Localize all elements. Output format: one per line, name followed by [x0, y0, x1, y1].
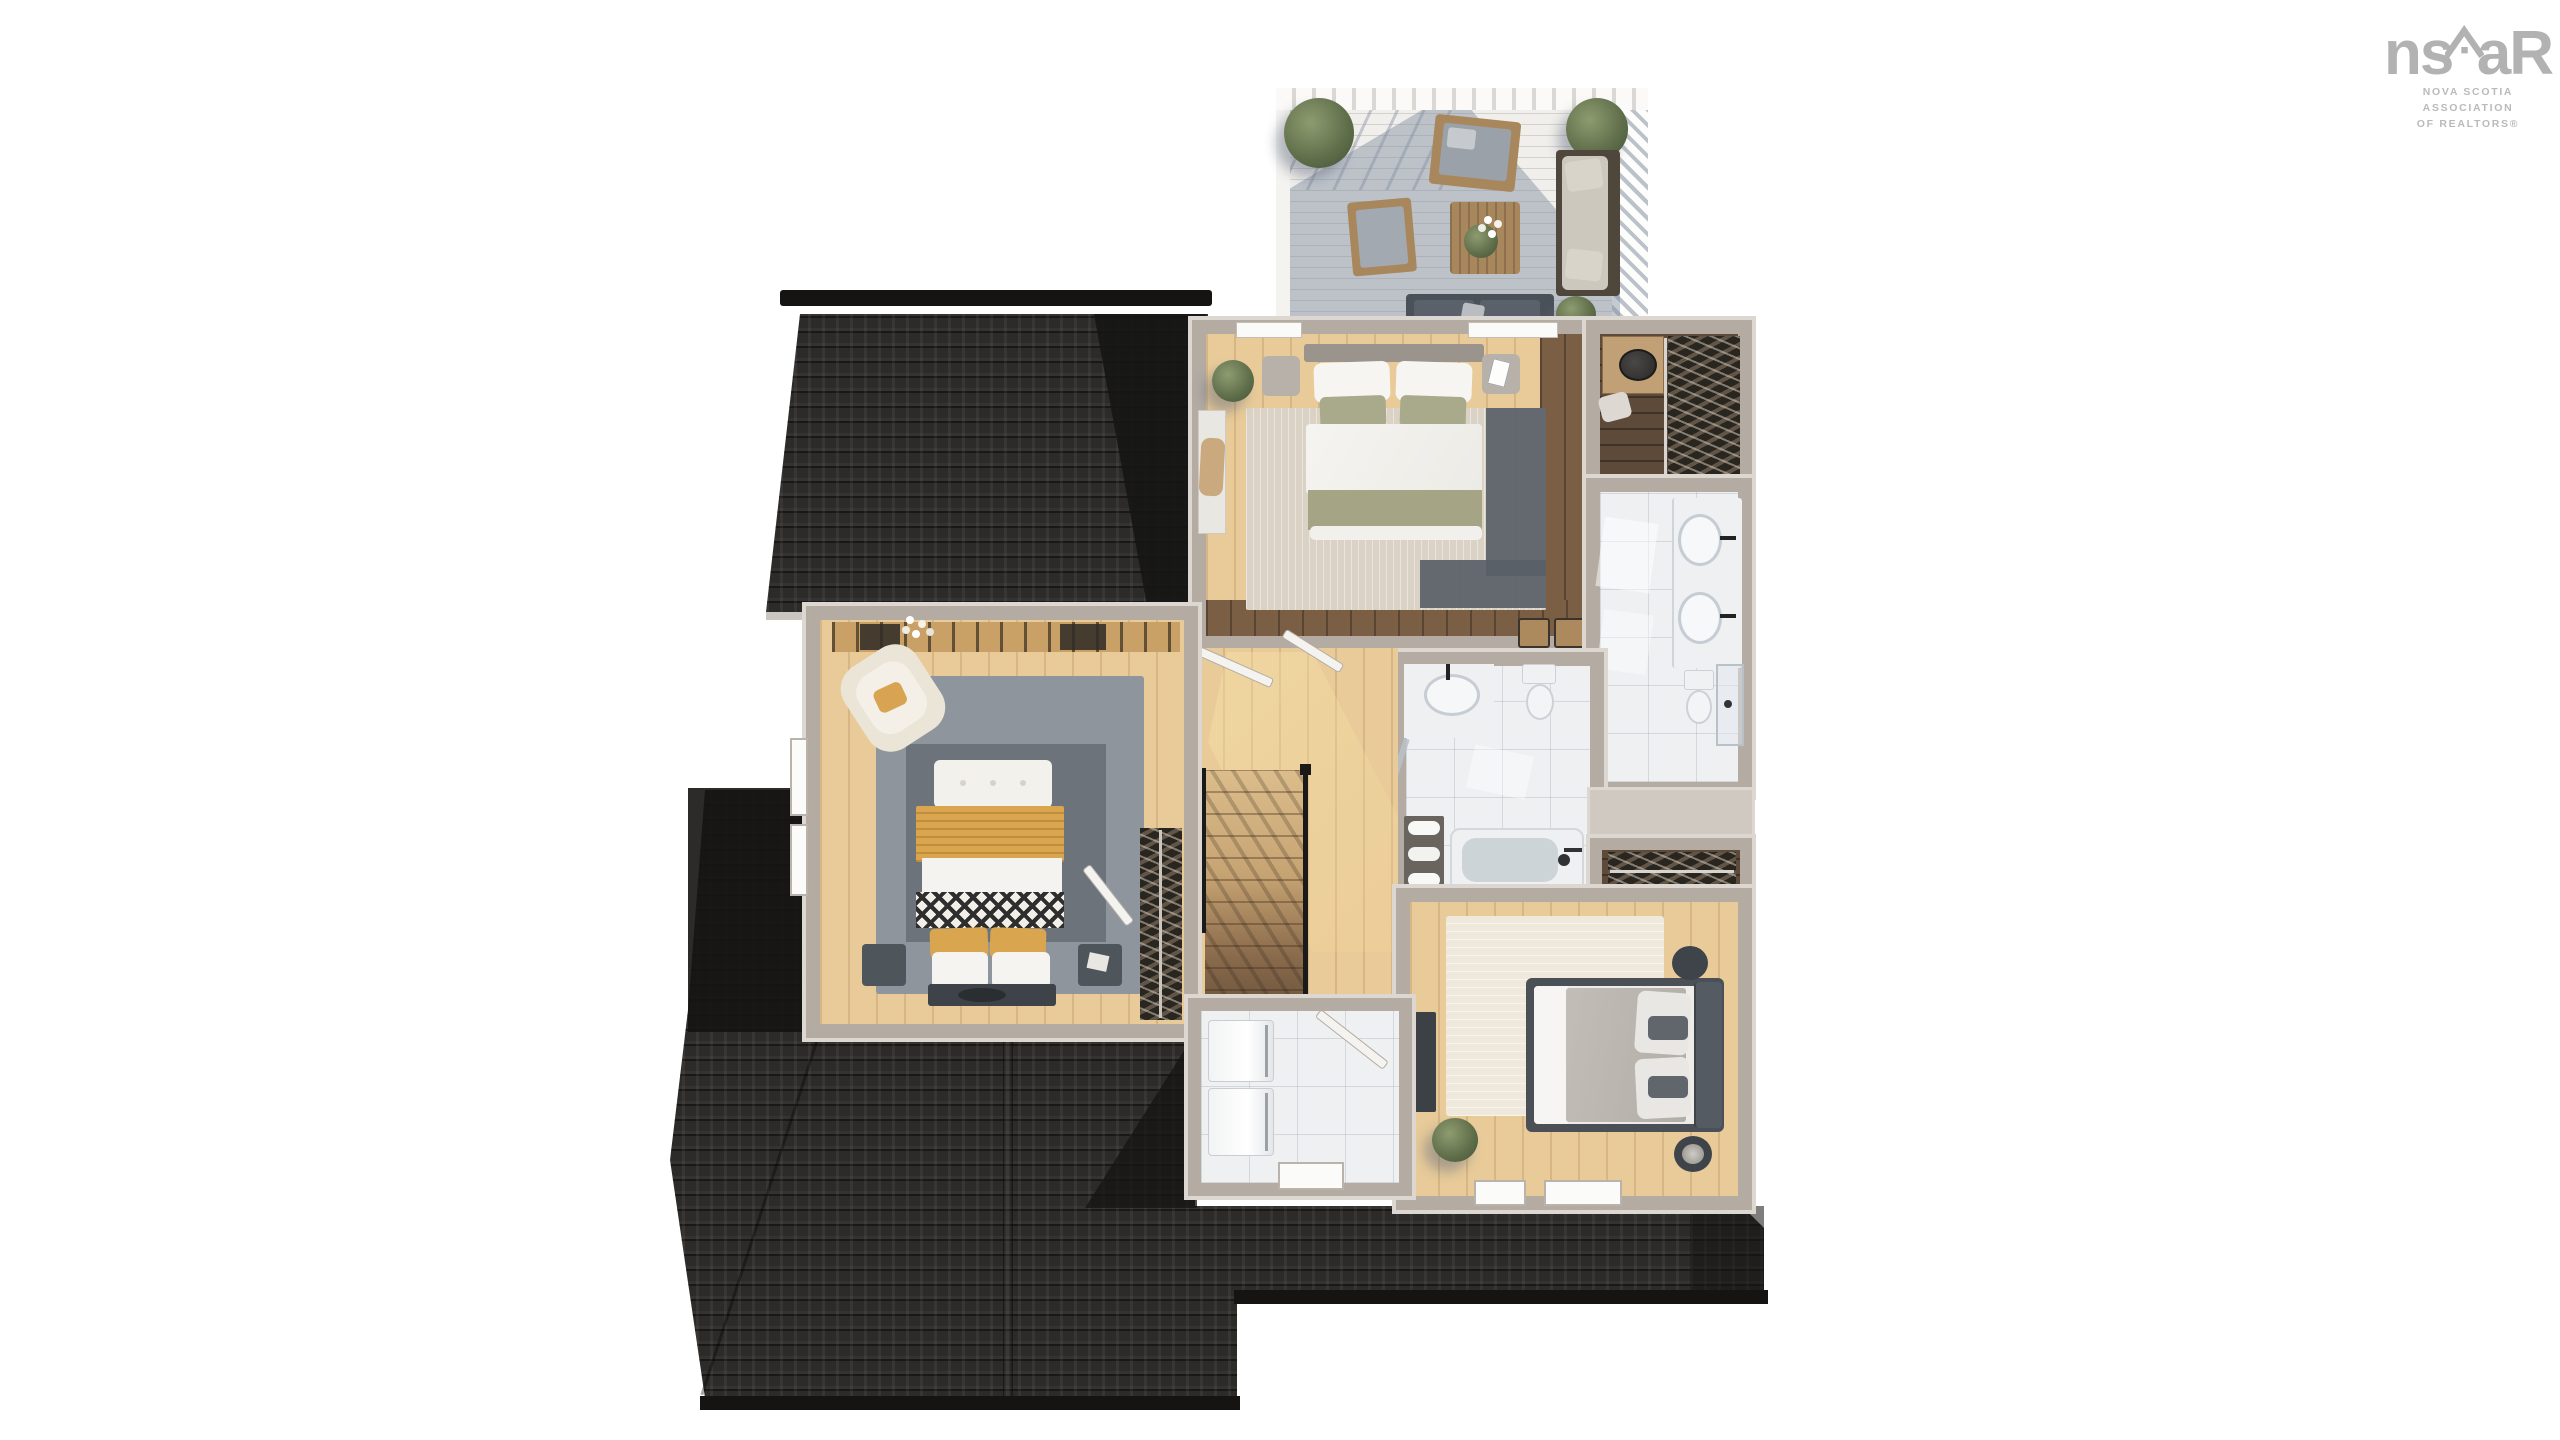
bed-throw-chevron [916, 892, 1064, 928]
faucet [1720, 536, 1736, 540]
towel-shelf [1404, 816, 1444, 894]
primary-floor-walnut [1540, 334, 1592, 636]
floor-tray [958, 988, 1006, 1002]
round-pouf [1674, 1136, 1712, 1172]
hanging-clothes [1668, 336, 1740, 482]
bed-headboard [1304, 344, 1484, 362]
railing-post [1300, 764, 1311, 775]
logo-tagline: NOVA SCOTIA ASSOCIATION OF REALTORS® [2384, 85, 2552, 132]
houseplant [1432, 1118, 1478, 1162]
outdoor-sectional-sofa [1556, 150, 1620, 296]
window [1544, 1180, 1622, 1206]
wood-stool [1554, 618, 1586, 648]
logo-tagline-line1: NOVA SCOTIA ASSOCIATION [2384, 85, 2552, 117]
faucet [1446, 664, 1450, 680]
window [1278, 1162, 1344, 1190]
vessel-sink [1678, 592, 1722, 644]
wood-stool [1518, 618, 1550, 648]
dryer [1208, 1088, 1274, 1156]
bed-pillow-accent [1648, 1076, 1688, 1098]
roof-gutter-bottom [700, 1396, 1240, 1410]
bathtub [1450, 828, 1584, 892]
lounge-chair [1429, 114, 1522, 193]
window [1474, 1180, 1526, 1206]
vessel-sink [1678, 514, 1722, 566]
bed-throw-sage [1308, 490, 1482, 530]
closet-dresser [1602, 336, 1664, 394]
window [790, 824, 808, 896]
houseplant [1212, 360, 1254, 402]
roof-ridge-cap [780, 290, 1212, 306]
bed-pillow [992, 952, 1050, 988]
roof-gutter-right [1234, 1290, 1768, 1304]
staircase [1205, 770, 1305, 1035]
shower-glass [1716, 664, 1744, 746]
roof-ridge-seam [1003, 1030, 1013, 1398]
outdoor-table [1450, 202, 1520, 274]
tub-faucet [1558, 854, 1570, 866]
stair-railing [1201, 768, 1206, 933]
logo-text-right: aR [2477, 30, 2552, 78]
bed-duvet [1306, 424, 1482, 494]
closet-rod [1159, 830, 1162, 1018]
round-pouf [1672, 946, 1708, 980]
toilet-bowl [1686, 690, 1712, 724]
nightstand [1262, 356, 1300, 396]
washer [1208, 1020, 1274, 1082]
window-sill [1236, 322, 1302, 338]
bed-foot [1310, 526, 1482, 540]
window [790, 738, 808, 816]
desk [1412, 1012, 1436, 1112]
faucet [1720, 614, 1736, 618]
closet-rod [1664, 338, 1667, 482]
nsar-logo: ns aR NOVA SCOTIA ASSOCIATION OF REALTOR… [2384, 20, 2552, 132]
roof-lower-shadow-right [1690, 1206, 1764, 1292]
window-sill [1468, 322, 1558, 338]
floor-plan: ns aR NOVA SCOTIA ASSOCIATION OF REALTOR… [0, 0, 2560, 1440]
desk-chair [1198, 437, 1225, 496]
bed-duvet [922, 858, 1062, 896]
dark-rug [1420, 560, 1546, 608]
hanging-garment [1060, 624, 1106, 650]
bed-bench [934, 760, 1052, 808]
toilet [1522, 664, 1556, 684]
bed-pillow-accent [1648, 1016, 1688, 1040]
logo-tagline-line2: OF REALTORS® [2384, 117, 2552, 133]
logo-wordmark: ns aR [2384, 20, 2552, 78]
dark-rug [1486, 408, 1546, 576]
nightstand [1482, 354, 1520, 394]
toilet [1684, 670, 1714, 690]
logo-text-left: ns [2384, 30, 2452, 78]
wall-mass [1590, 790, 1752, 844]
sunlight-patch [1596, 609, 1654, 675]
potted-tree [1284, 98, 1354, 168]
sunlight-patch [1595, 517, 1658, 594]
bed-sheet-fold [1534, 986, 1568, 1124]
lounge-chair [1347, 197, 1417, 276]
shelf-flowers [906, 616, 914, 624]
bed-headboard [1694, 982, 1722, 1128]
closet-rod [1610, 870, 1734, 873]
bed-blanket-mustard [916, 806, 1064, 862]
room-deck [1276, 88, 1648, 334]
toilet-bowl [1526, 684, 1554, 720]
nightstand [1078, 944, 1122, 986]
bed-pillow [932, 952, 988, 988]
nightstand [862, 944, 906, 986]
round-sink [1424, 674, 1480, 716]
